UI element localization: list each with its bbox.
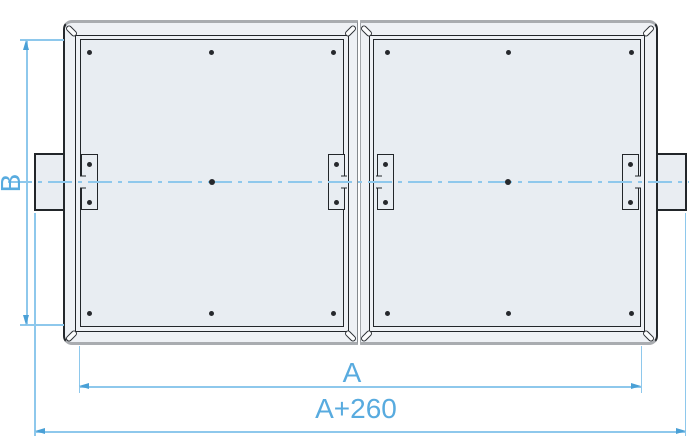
panel-screw	[209, 311, 214, 316]
extension-line	[685, 213, 686, 436]
dimension-label-a: A	[292, 360, 412, 386]
arrow-right-icon	[676, 428, 686, 434]
extension-line	[34, 213, 35, 436]
latch-screw	[383, 162, 388, 167]
latch-screw	[628, 200, 633, 205]
latch-screw	[628, 162, 633, 167]
dimension-line	[26, 40, 28, 325]
arrow-right-icon	[631, 383, 641, 389]
latch-screw	[383, 200, 388, 205]
dimension-label-a-plus-260: A+260	[280, 396, 432, 422]
dimension-line	[35, 431, 686, 433]
arrow-left-icon	[35, 428, 45, 434]
panel-screw	[209, 50, 214, 55]
arrow-down-icon	[23, 315, 29, 325]
panel-screw	[385, 311, 390, 316]
center-screw	[505, 179, 511, 185]
panel-screw	[87, 311, 92, 316]
panel-screw	[629, 50, 634, 55]
panel-screw	[506, 311, 511, 316]
dimension-label-b: B	[0, 161, 24, 205]
center-screw	[209, 179, 215, 185]
panel-screw	[331, 50, 336, 55]
arrow-up-icon	[23, 40, 29, 50]
latch-screw	[87, 200, 92, 205]
panel-screw	[506, 50, 511, 55]
latch-screw	[334, 200, 339, 205]
panel-screw	[87, 50, 92, 55]
latch-screw	[334, 162, 339, 167]
panel-screw	[629, 311, 634, 316]
panel-screw	[385, 50, 390, 55]
centerline	[8, 181, 689, 183]
arrow-left-icon	[79, 383, 89, 389]
technical-drawing-canvas: B A A+260	[0, 0, 696, 443]
latch-screw	[87, 162, 92, 167]
panel-screw	[331, 311, 336, 316]
